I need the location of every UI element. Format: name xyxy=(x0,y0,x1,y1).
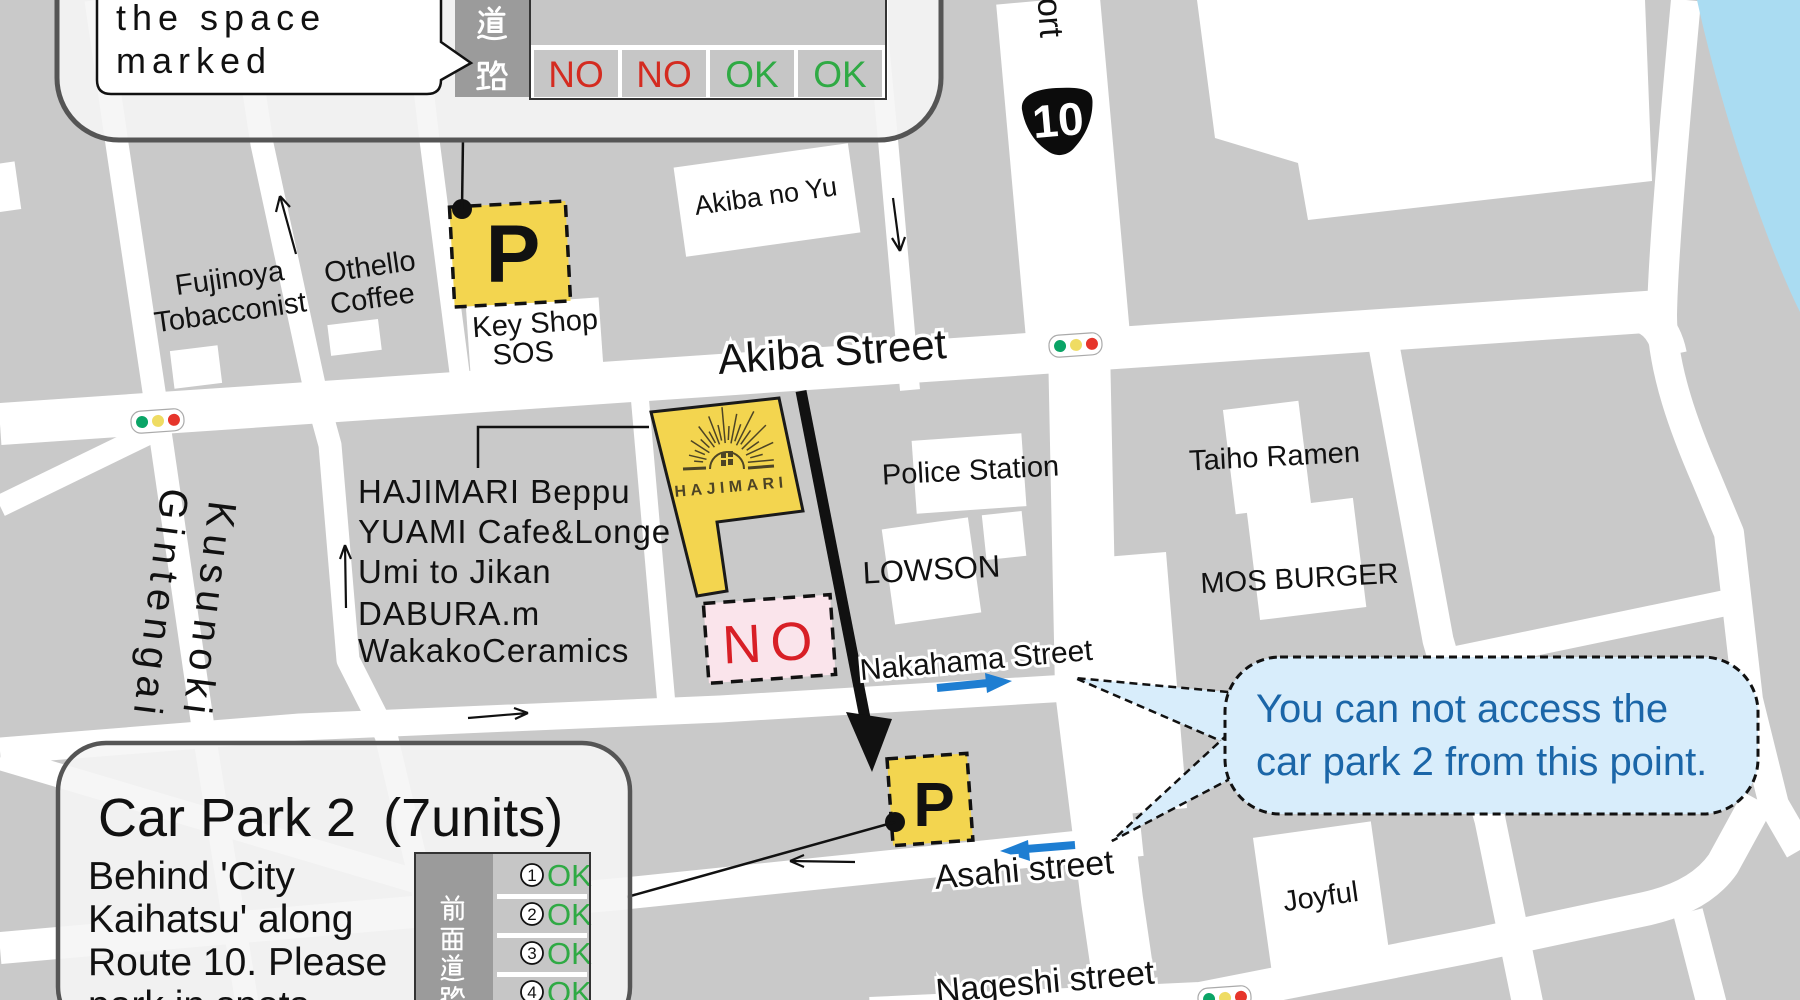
svg-text:Umi to Jikan: Umi to Jikan xyxy=(358,553,552,590)
svg-text:WakakoCeramics: WakakoCeramics xyxy=(358,632,629,669)
svg-text:P: P xyxy=(913,771,954,840)
svg-text:DABURA.m: DABURA.m xyxy=(358,595,540,632)
svg-text:NO: NO xyxy=(636,54,692,95)
svg-text:OK: OK xyxy=(547,936,592,971)
svg-text:NO: NO xyxy=(548,54,604,95)
svg-text:OK: OK xyxy=(547,975,592,1000)
svg-text:park in spots: park in spots xyxy=(88,984,309,1000)
svg-text:LOWSON: LOWSON xyxy=(862,548,1001,590)
svg-text:YUAMI Cafe&Longe: YUAMI Cafe&Longe xyxy=(358,513,671,550)
svg-text:3: 3 xyxy=(527,944,536,963)
svg-text:1: 1 xyxy=(527,866,536,885)
svg-text:NO: NO xyxy=(721,610,823,675)
svg-text:10: 10 xyxy=(1030,92,1086,148)
svg-text:Route 10. Please: Route 10. Please xyxy=(88,941,387,984)
svg-text:SOS: SOS xyxy=(492,336,555,372)
svg-text:the space: the space xyxy=(116,0,326,38)
svg-text:Car Park 2 (7units): Car Park 2 (7units) xyxy=(98,788,563,848)
svg-text:2: 2 xyxy=(527,905,536,924)
svg-text:P: P xyxy=(486,209,541,300)
svg-text:car park 2 from this point.: car park 2 from this point. xyxy=(1256,740,1707,784)
svg-text:marked: marked xyxy=(116,40,272,81)
svg-text:OK: OK xyxy=(813,54,867,95)
svg-text:You can not access the: You can not access the xyxy=(1256,687,1668,731)
svg-text:HAJIMARI Beppu: HAJIMARI Beppu xyxy=(358,473,631,510)
svg-text:Behind 'City: Behind 'City xyxy=(88,855,295,898)
svg-text:OK: OK xyxy=(547,897,592,932)
svg-text:4: 4 xyxy=(527,983,536,1000)
svg-text:OK: OK xyxy=(547,858,592,893)
svg-text:Port: Port xyxy=(1028,0,1070,39)
svg-text:OK: OK xyxy=(725,54,779,95)
svg-text:Kaihatsu' along: Kaihatsu' along xyxy=(88,898,353,941)
